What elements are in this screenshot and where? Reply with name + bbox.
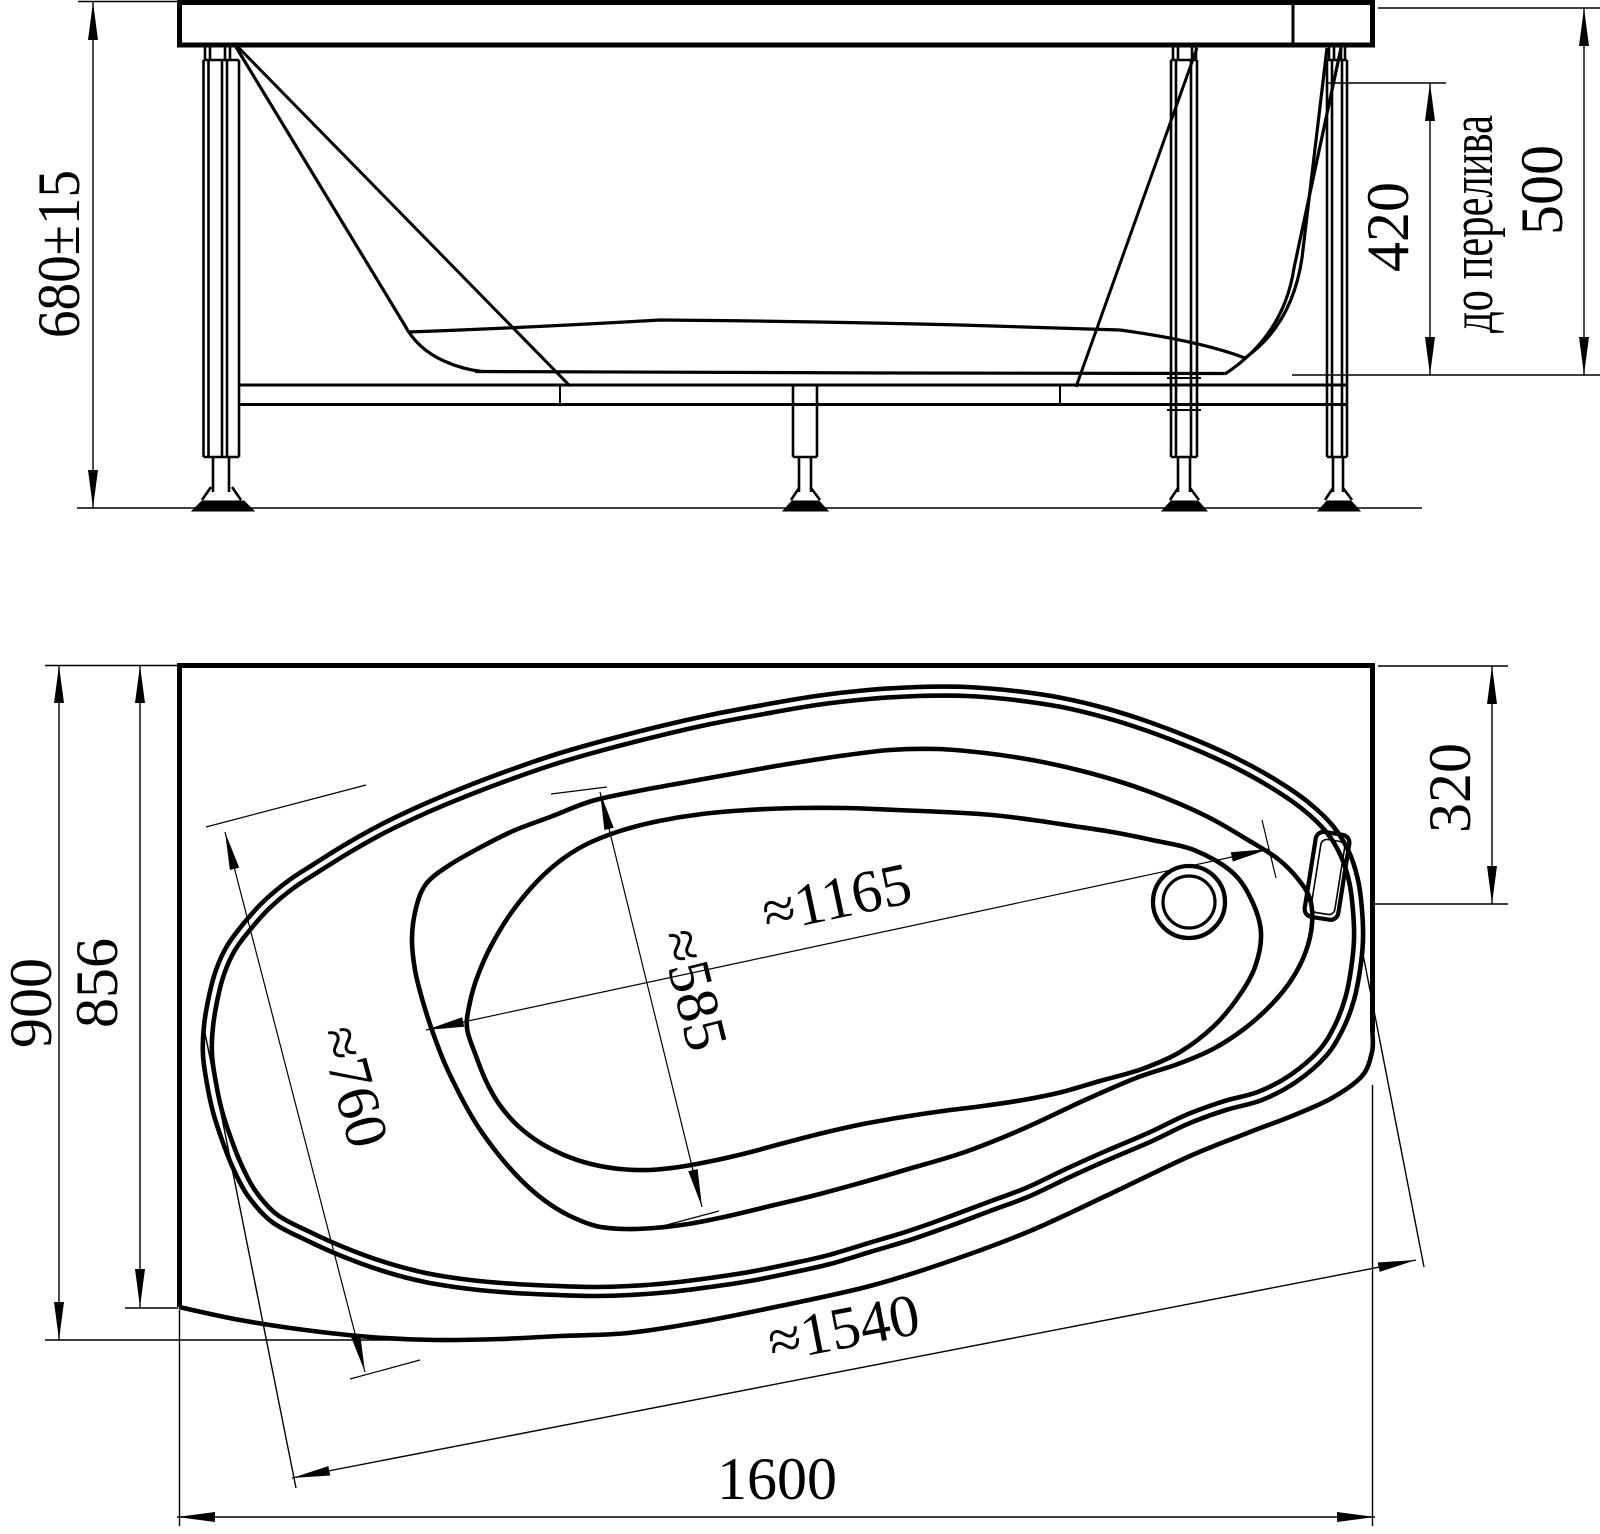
svg-text:1600: 1600 [717,1446,837,1512]
svg-text:420: 420 [1355,182,1421,272]
svg-text:320: 320 [1417,743,1483,833]
svg-text:900: 900 [0,958,64,1048]
svg-text:680±15: 680±15 [26,170,92,338]
svg-text:до перелива: до перелива [1439,115,1505,333]
svg-text:856: 856 [64,938,130,1028]
svg-text:500: 500 [1509,145,1575,235]
